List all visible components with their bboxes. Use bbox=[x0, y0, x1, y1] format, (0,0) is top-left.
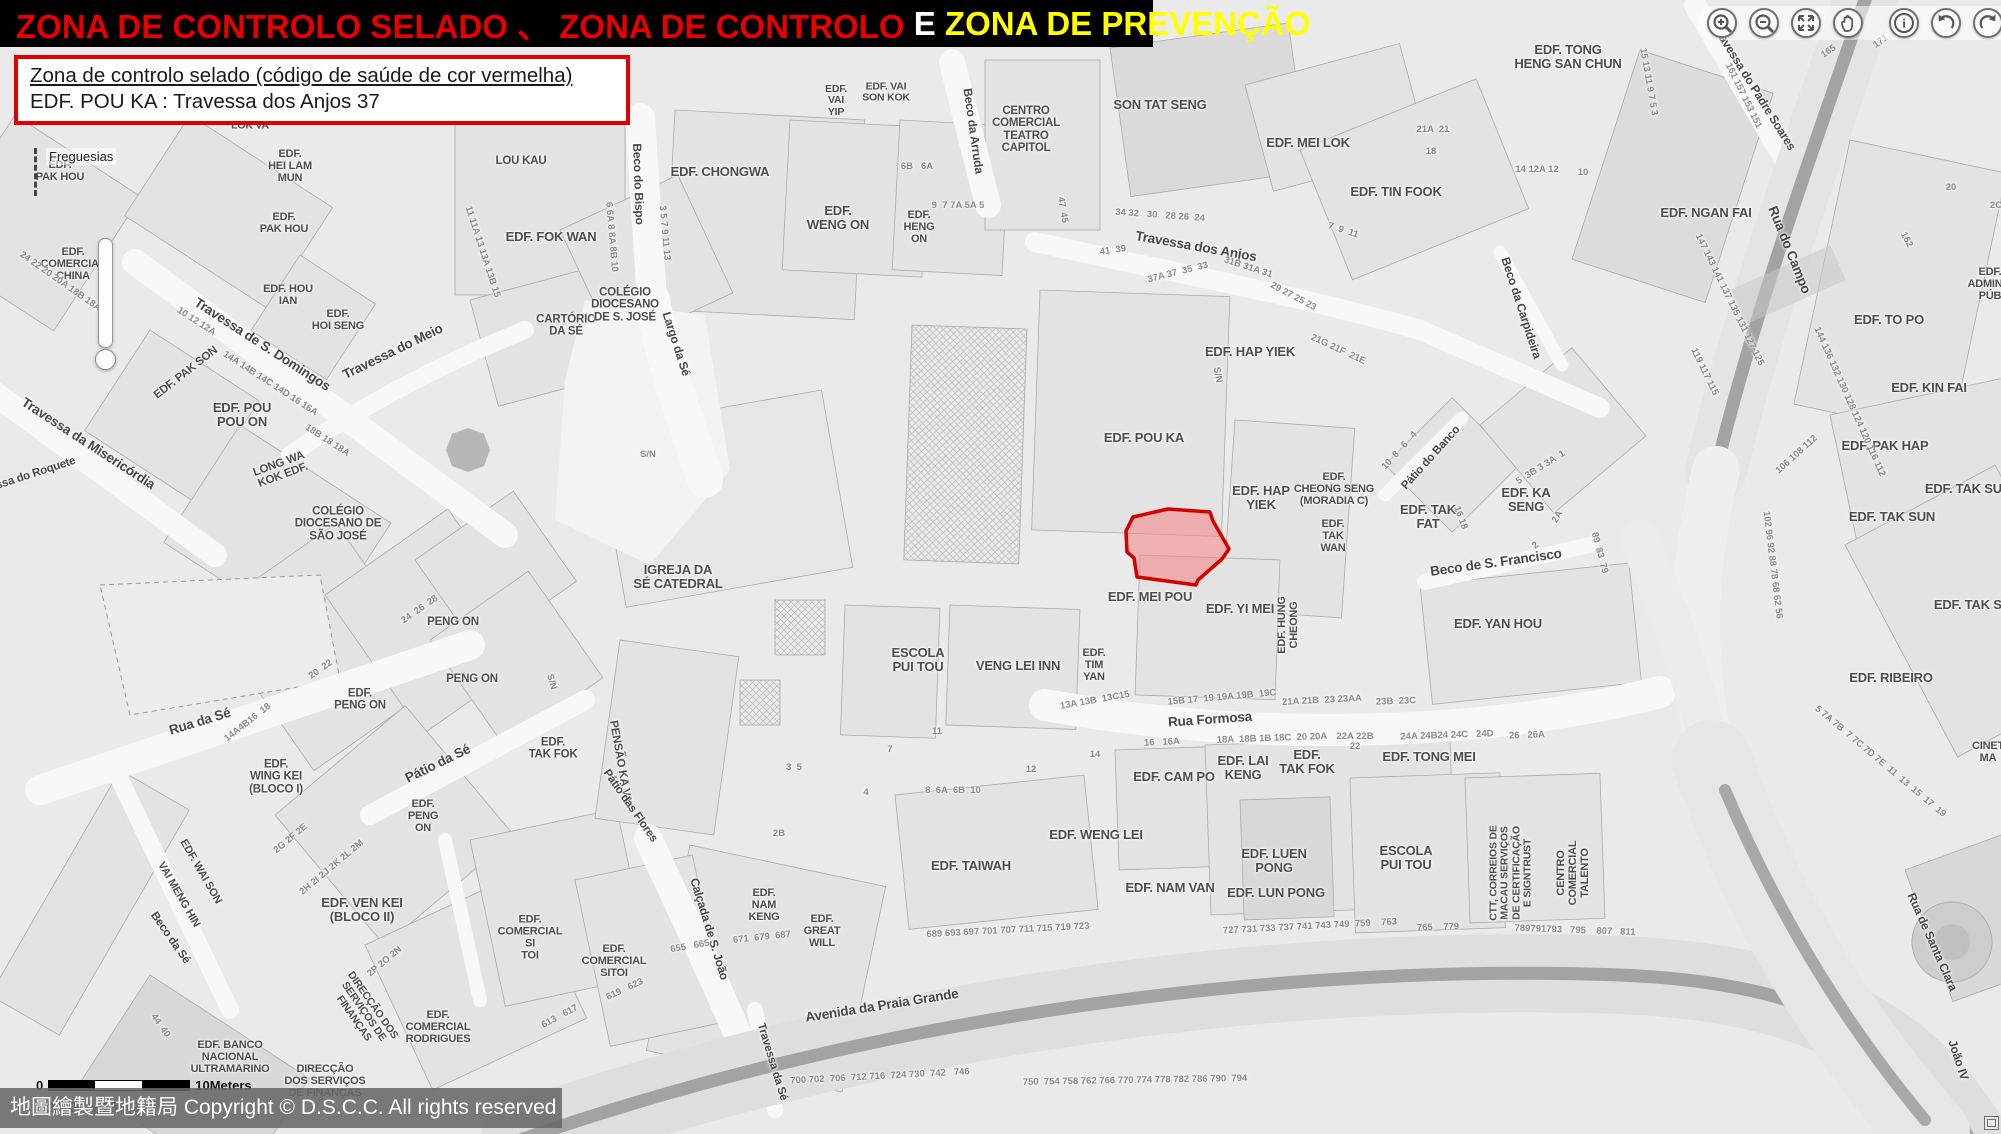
svg-text:i: i bbox=[1902, 16, 1906, 31]
info-line-zone-type: Zona de controlo selado (código de saúde… bbox=[30, 64, 614, 88]
pan-hand-icon[interactable] bbox=[1833, 8, 1863, 38]
next-extent-icon[interactable] bbox=[1973, 8, 2001, 38]
banner-text-segment: E bbox=[905, 5, 945, 43]
previous-extent-icon[interactable] bbox=[1931, 8, 1961, 38]
map-application: EDF. TONG HENG SAN CHUNEDF. VAI YIPEDF. … bbox=[0, 0, 2001, 1134]
zoom-in-icon[interactable] bbox=[1707, 8, 1737, 38]
copyright-bar: 地圖繪製暨地籍局 Copyright © D.S.C.C. All rights… bbox=[0, 1088, 562, 1128]
full-extent-icon[interactable] bbox=[1791, 8, 1821, 38]
layer-toggle-freguesias[interactable]: Freguesias bbox=[46, 148, 116, 165]
legend-ticks bbox=[34, 148, 40, 196]
corner-expand-icon[interactable] bbox=[1984, 1116, 1999, 1130]
zoom-slider-knob[interactable] bbox=[95, 349, 116, 370]
banner-text-segment: ZONA DE PREVENÇÃO bbox=[945, 5, 1310, 43]
banner-text-segment: ZONA DE CONTROLO SELADO 、 ZONA DE CONTRO… bbox=[16, 0, 905, 48]
plaza-kiosk bbox=[446, 428, 490, 472]
title-banner: ZONA DE CONTROLO SELADO 、 ZONA DE CONTRO… bbox=[0, 0, 1153, 47]
zoom-out-icon[interactable] bbox=[1749, 8, 1779, 38]
layers-legend: Freguesias bbox=[34, 148, 116, 196]
info-line-address: EDF. POU KA : Travessa dos Anjos 37 bbox=[30, 90, 614, 114]
identify-icon[interactable]: i bbox=[1889, 8, 1919, 38]
map-toolbar: i bbox=[1698, 6, 2001, 40]
zoom-slider[interactable] bbox=[98, 238, 113, 348]
sealed-zone-info-box: Zona de controlo selado (código de saúde… bbox=[14, 55, 630, 125]
map-canvas[interactable] bbox=[0, 0, 2001, 1134]
